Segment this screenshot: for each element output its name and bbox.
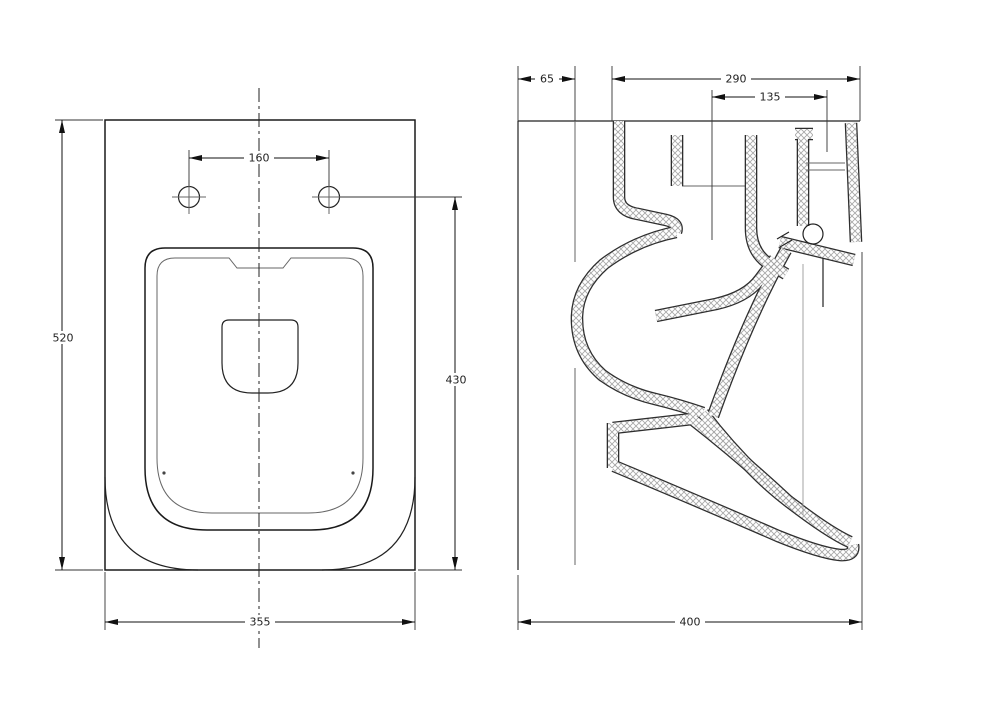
section-view: 65 290 135 400 (518, 66, 862, 630)
dim-bolt-to-front-label: 430 (446, 374, 467, 387)
plan-view: 160 520 430 355 (48, 88, 471, 648)
flush-hole-circle (803, 224, 823, 244)
bowl-opening (222, 320, 298, 393)
dim-overall-width-label: 355 (250, 616, 271, 629)
dim-wall-offset-label: 65 (540, 73, 554, 86)
dim-overall-depth-label: 520 (53, 332, 74, 345)
dim-flush-channel-label: 135 (760, 91, 781, 104)
seat-bumper-dot (351, 471, 354, 474)
plan-body-outline (105, 88, 415, 648)
dim-bolt-spacing-label: 160 (249, 152, 270, 165)
drawing-canvas: 160 520 430 355 (0, 0, 1000, 720)
dim-section-depth-label: 400 (680, 616, 701, 629)
technical-drawing: 160 520 430 355 (0, 0, 1000, 720)
section-details (777, 163, 845, 515)
seat-bumper-dot (162, 471, 165, 474)
seat-inner-outline (157, 258, 363, 513)
dim-rim-depth-label: 290 (726, 73, 747, 86)
rim-ledge-lines (806, 163, 845, 170)
